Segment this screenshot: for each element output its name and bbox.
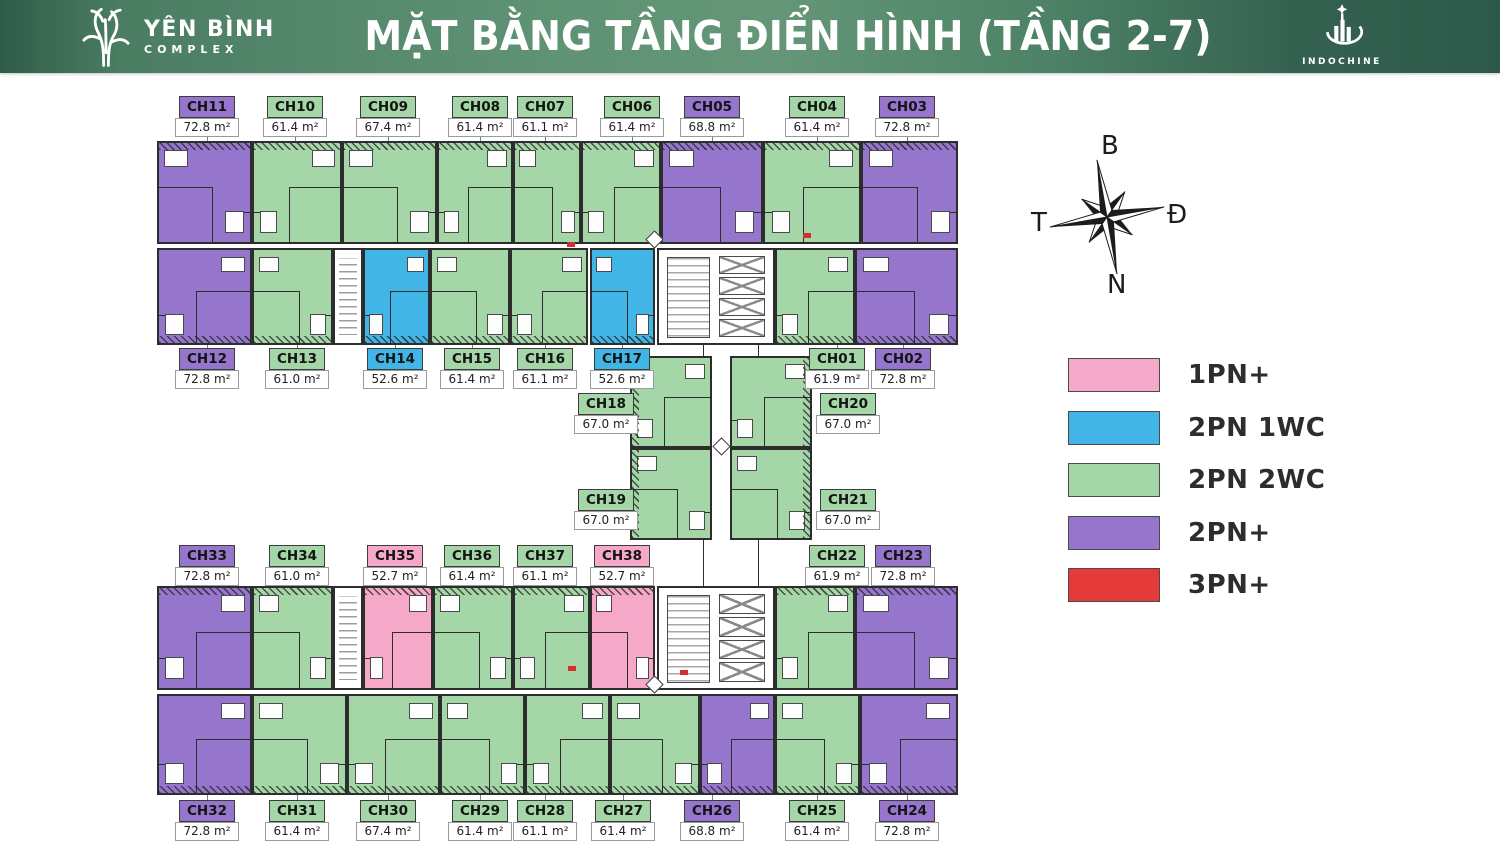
elevator-bank	[719, 594, 765, 682]
unit-code: CH31	[269, 800, 325, 822]
unit-label-ch24: CH2472.8 m²	[875, 800, 939, 841]
unit-ch27	[610, 694, 700, 795]
unit-code: CH23	[875, 545, 931, 567]
elevator-bank	[719, 256, 765, 338]
legend-swatch	[1068, 358, 1160, 392]
balcony-hatch	[442, 786, 523, 793]
unit-label-ch27: CH2761.4 m²	[591, 800, 655, 841]
unit-code: CH18	[578, 393, 634, 415]
legend-swatch	[1068, 568, 1160, 602]
unit-code: CH33	[179, 545, 235, 567]
balcony-hatch	[254, 143, 340, 150]
unit-code: CH35	[367, 545, 423, 567]
unit-code: CH30	[360, 800, 416, 822]
unit-area: 61.9 m²	[805, 567, 869, 586]
unit-ch05	[661, 141, 763, 244]
balcony-hatch	[512, 336, 586, 343]
unit-code: CH06	[604, 96, 660, 118]
unit-label-ch10: CH1061.4 m²	[263, 96, 327, 137]
unit-area: 52.6 m²	[590, 370, 654, 389]
unit-ch14	[363, 248, 430, 345]
unit-ch07	[513, 141, 581, 244]
stair-diamond-marker	[712, 437, 730, 455]
corridor-bottom	[703, 540, 759, 587]
unit-code: CH14	[367, 348, 423, 370]
unit-area: 61.4 m²	[785, 118, 849, 137]
elevator-cell	[719, 298, 765, 316]
unit-area: 52.6 m²	[363, 370, 427, 389]
unit-code: CH21	[820, 489, 876, 511]
unit-code: CH22	[809, 545, 865, 567]
unit-code: CH15	[444, 348, 500, 370]
unit-label-ch37: CH3761.1 m²	[513, 545, 577, 586]
balcony-hatch	[439, 143, 511, 150]
unit-area: 67.4 m²	[356, 822, 420, 841]
unit-label-ch33: CH3372.8 m²	[175, 545, 239, 586]
unit-area: 61.1 m²	[513, 370, 577, 389]
elevator-cell	[719, 662, 765, 682]
unit-ch04	[763, 141, 861, 244]
unit-ch15	[430, 248, 510, 345]
unit-code: CH20	[820, 393, 876, 415]
balcony-hatch	[663, 143, 761, 150]
unit-ch17	[590, 248, 655, 345]
elevator-cell	[719, 640, 765, 660]
unit-ch30	[347, 694, 440, 795]
balcony-hatch	[583, 143, 659, 150]
unit-ch34	[252, 586, 333, 690]
legend-swatch	[1068, 463, 1160, 497]
unit-label-ch07: CH0761.1 m²	[513, 96, 577, 137]
legend-item-2: 2PN 1WC	[1068, 411, 1325, 445]
balcony-hatch	[159, 588, 250, 595]
unit-area: 61.4 m²	[591, 822, 655, 841]
unit-area: 61.4 m²	[785, 822, 849, 841]
unit-code: CH02	[875, 348, 931, 370]
unit-area: 67.0 m²	[574, 511, 638, 530]
staircase	[667, 257, 710, 339]
elevator-core-top	[657, 248, 775, 345]
unit-ch22	[775, 586, 855, 690]
unit-ch25	[775, 694, 860, 795]
unit-area: 72.8 m²	[175, 118, 239, 137]
unit-code: CH04	[789, 96, 845, 118]
unit-area: 72.8 m²	[175, 822, 239, 841]
compass-south-label: N	[1107, 270, 1126, 300]
unit-code: CH24	[879, 800, 935, 822]
unit-ch26	[700, 694, 775, 795]
unit-area: 67.0 m²	[816, 415, 880, 434]
unit-ch28	[525, 694, 610, 795]
elevator-core-bottom	[657, 586, 775, 690]
unit-label-ch29: CH2961.4 m²	[448, 800, 512, 841]
unit-code: CH29	[452, 800, 508, 822]
unit-ch35	[363, 586, 433, 690]
unit-label-ch06: CH0661.4 m²	[600, 96, 664, 137]
unit-ch08	[437, 141, 513, 244]
unit-area: 61.4 m²	[448, 118, 512, 137]
balcony-hatch	[777, 786, 858, 793]
balcony-hatch	[254, 786, 345, 793]
balcony-hatch	[777, 336, 853, 343]
unit-label-ch02: CH0272.8 m²	[871, 348, 935, 389]
unit-label-ch38: CH3852.7 m²	[590, 545, 654, 586]
red-door-marker	[568, 666, 576, 671]
balcony-hatch	[159, 336, 250, 343]
unit-ch03	[861, 141, 958, 244]
page: YÊN BÌNH COMPLEX MẶT BẰNG TẦNG ĐIỂN HÌNH…	[0, 0, 1500, 844]
unit-label-ch16: CH1661.1 m²	[513, 348, 577, 389]
legend-swatch	[1068, 516, 1160, 550]
red-door-marker	[567, 242, 575, 247]
unit-label-ch30: CH3067.4 m²	[356, 800, 420, 841]
legend-label: 2PN 2WC	[1188, 465, 1325, 495]
unit-ch01	[775, 248, 855, 345]
balcony-hatch	[254, 336, 331, 343]
unit-label-ch14: CH1452.6 m²	[363, 348, 427, 389]
unit-area: 72.8 m²	[871, 370, 935, 389]
unit-area: 52.7 m²	[363, 567, 427, 586]
balcony-hatch	[515, 588, 588, 595]
unit-code: CH08	[452, 96, 508, 118]
unit-label-ch04: CH0461.4 m²	[785, 96, 849, 137]
unit-label-ch08: CH0861.4 m²	[448, 96, 512, 137]
unit-area: 67.4 m²	[356, 118, 420, 137]
balcony-hatch	[349, 786, 438, 793]
unit-ch32	[157, 694, 252, 795]
unit-ch21	[730, 448, 812, 540]
legend-item-3: 2PN 2WC	[1068, 463, 1325, 497]
unit-area: 61.4 m²	[440, 567, 504, 586]
unit-label-ch32: CH3272.8 m²	[175, 800, 239, 841]
unit-ch23	[855, 586, 958, 690]
unit-ch16	[510, 248, 588, 345]
legend-label: 2PN 1WC	[1188, 413, 1325, 443]
unit-code: CH03	[879, 96, 935, 118]
legend-item-1: 1PN+	[1068, 358, 1271, 392]
unit-code: CH19	[578, 489, 634, 511]
unit-area: 52.7 m²	[590, 567, 654, 586]
unit-label-ch17: CH1752.6 m²	[590, 348, 654, 389]
unit-label-ch21: CH2167.0 m²	[816, 489, 880, 530]
balcony-hatch	[857, 588, 956, 595]
balcony-hatch	[592, 588, 653, 595]
balcony-hatch	[159, 786, 250, 793]
unit-area: 61.4 m²	[265, 822, 329, 841]
unit-code: CH11	[179, 96, 235, 118]
unit-area: 67.0 m²	[574, 415, 638, 434]
legend-label: 3PN+	[1188, 570, 1271, 600]
unit-label-ch26: CH2668.8 m²	[680, 800, 744, 841]
unit-ch31	[252, 694, 347, 795]
balcony-hatch	[777, 588, 853, 595]
unit-label-ch28: CH2861.1 m²	[513, 800, 577, 841]
unit-label-ch22: CH2261.9 m²	[805, 545, 869, 586]
unit-code: CH16	[517, 348, 573, 370]
unit-code: CH07	[517, 96, 573, 118]
unit-ch24	[860, 694, 958, 795]
unit-code: CH10	[267, 96, 323, 118]
unit-label-ch31: CH3161.4 m²	[265, 800, 329, 841]
unit-label-ch11: CH1172.8 m²	[175, 96, 239, 137]
unit-code: CH32	[179, 800, 235, 822]
unit-label-ch23: CH2372.8 m²	[871, 545, 935, 586]
unit-label-ch19: CH1967.0 m²	[574, 489, 638, 530]
unit-area: 61.1 m²	[513, 567, 577, 586]
stair-core-top	[333, 248, 363, 345]
unit-area: 61.0 m²	[265, 567, 329, 586]
elevator-cell	[719, 319, 765, 337]
unit-code: CH12	[179, 348, 235, 370]
unit-label-ch18: CH1867.0 m²	[574, 393, 638, 434]
unit-ch10	[252, 141, 342, 244]
unit-area: 61.4 m²	[263, 118, 327, 137]
legend-label: 2PN+	[1188, 518, 1271, 548]
unit-label-ch05: CH0568.8 m²	[680, 96, 744, 137]
legend-label: 1PN+	[1188, 360, 1271, 390]
balcony-hatch	[432, 336, 508, 343]
stair-core-bottom	[333, 586, 363, 690]
unit-label-ch20: CH2067.0 m²	[816, 393, 880, 434]
unit-area: 67.0 m²	[816, 511, 880, 530]
unit-code: CH25	[789, 800, 845, 822]
unit-ch33	[157, 586, 252, 690]
legend-item-5: 3PN+	[1068, 568, 1271, 602]
balcony-hatch	[862, 786, 956, 793]
unit-label-ch13: CH1361.0 m²	[265, 348, 329, 389]
unit-label-ch35: CH3552.7 m²	[363, 545, 427, 586]
red-door-marker	[803, 233, 811, 238]
balcony-hatch	[435, 588, 511, 595]
compass-east-label: Đ	[1167, 200, 1187, 230]
unit-ch02	[855, 248, 958, 345]
unit-area: 72.8 m²	[175, 370, 239, 389]
legend-swatch	[1068, 411, 1160, 445]
compass-long-arms	[1040, 150, 1174, 284]
unit-code: CH05	[684, 96, 740, 118]
unit-area: 61.4 m²	[440, 370, 504, 389]
unit-code: CH01	[809, 348, 865, 370]
unit-label-ch34: CH3461.0 m²	[265, 545, 329, 586]
legend-item-4: 2PN+	[1068, 516, 1271, 550]
balcony-hatch	[365, 336, 428, 343]
balcony-hatch	[702, 786, 773, 793]
unit-code: CH37	[517, 545, 573, 567]
unit-label-ch36: CH3661.4 m²	[440, 545, 504, 586]
unit-area: 72.8 m²	[175, 567, 239, 586]
unit-code: CH13	[269, 348, 325, 370]
unit-code: CH28	[517, 800, 573, 822]
unit-ch37	[513, 586, 590, 690]
unit-ch12	[157, 248, 252, 345]
unit-area: 61.9 m²	[805, 370, 869, 389]
balcony-hatch	[515, 143, 579, 150]
unit-area: 68.8 m²	[680, 118, 744, 137]
unit-ch09	[342, 141, 437, 244]
balcony-hatch	[803, 450, 810, 538]
balcony-hatch	[254, 588, 331, 595]
unit-ch13	[252, 248, 333, 345]
unit-label-ch25: CH2561.4 m²	[785, 800, 849, 841]
unit-area: 72.8 m²	[871, 567, 935, 586]
compass-west-label: T	[1030, 208, 1047, 238]
unit-ch38	[590, 586, 655, 690]
elevator-cell	[719, 256, 765, 274]
unit-code: CH17	[594, 348, 650, 370]
compass-north-label: B	[1101, 132, 1119, 161]
unit-ch06	[581, 141, 661, 244]
unit-area: 61.1 m²	[513, 822, 577, 841]
balcony-hatch	[612, 786, 698, 793]
unit-code: CH09	[360, 96, 416, 118]
unit-ch20	[730, 356, 812, 448]
unit-ch11	[157, 141, 252, 244]
unit-area: 61.0 m²	[265, 370, 329, 389]
elevator-cell	[719, 594, 765, 614]
staircase	[667, 595, 710, 683]
unit-area: 68.8 m²	[680, 822, 744, 841]
balcony-hatch	[365, 588, 431, 595]
unit-label-ch12: CH1272.8 m²	[175, 348, 239, 389]
unit-code: CH26	[684, 800, 740, 822]
unit-ch29	[440, 694, 525, 795]
unit-area: 61.4 m²	[448, 822, 512, 841]
balcony-hatch	[344, 143, 435, 150]
unit-area: 72.8 m²	[875, 118, 939, 137]
balcony-hatch	[159, 143, 250, 150]
unit-label-ch15: CH1561.4 m²	[440, 348, 504, 389]
red-door-marker	[680, 670, 688, 675]
balcony-hatch	[765, 143, 859, 150]
balcony-hatch	[863, 143, 956, 150]
unit-label-ch01: CH0161.9 m²	[805, 348, 869, 389]
unit-ch36	[433, 586, 513, 690]
unit-ch19	[630, 448, 712, 540]
balcony-hatch	[857, 336, 956, 343]
legend: 1PN+2PN 1WC2PN 2WC2PN+3PN+	[1068, 358, 1398, 618]
unit-code: CH36	[444, 545, 500, 567]
unit-label-ch09: CH0967.4 m²	[356, 96, 420, 137]
balcony-hatch	[527, 786, 608, 793]
elevator-cell	[719, 617, 765, 637]
unit-code: CH38	[594, 545, 650, 567]
unit-area: 72.8 m²	[875, 822, 939, 841]
unit-area: 61.1 m²	[513, 118, 577, 137]
unit-code: CH34	[269, 545, 325, 567]
unit-area: 61.4 m²	[600, 118, 664, 137]
unit-code: CH27	[595, 800, 651, 822]
compass-rose: B Đ N T	[1022, 132, 1192, 302]
unit-label-ch03: CH0372.8 m²	[875, 96, 939, 137]
elevator-cell	[719, 277, 765, 295]
balcony-hatch	[592, 336, 653, 343]
